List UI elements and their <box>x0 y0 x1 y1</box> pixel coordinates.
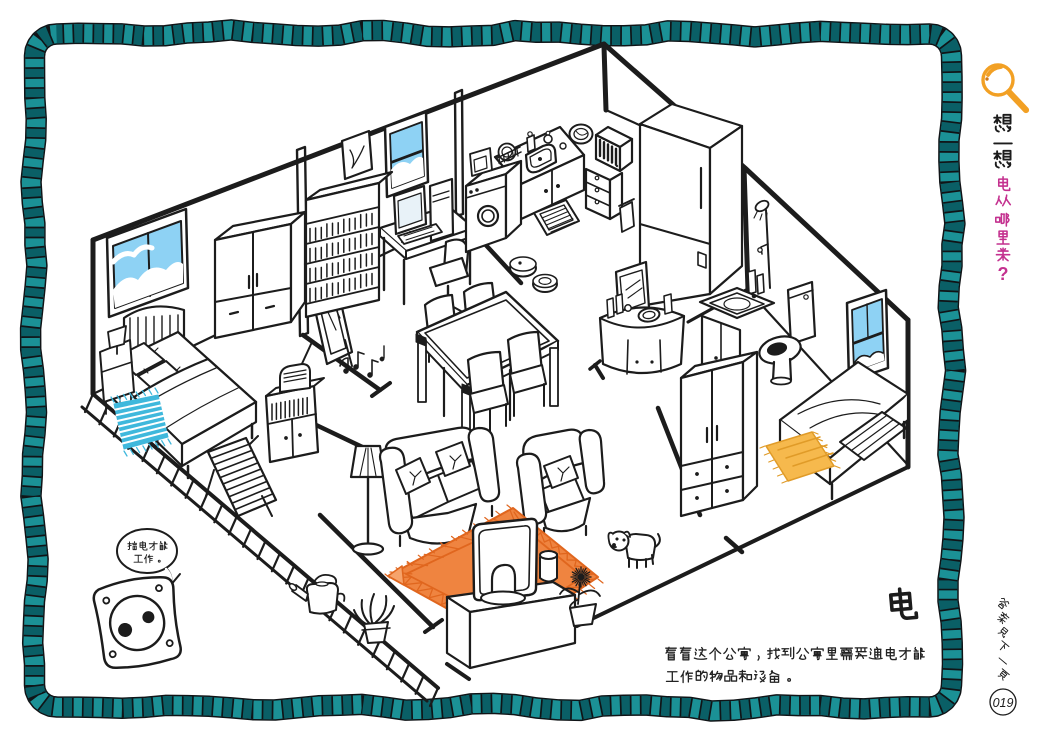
svg-text:019: 019 <box>993 696 1014 710</box>
svg-text:?: ? <box>998 264 1009 284</box>
